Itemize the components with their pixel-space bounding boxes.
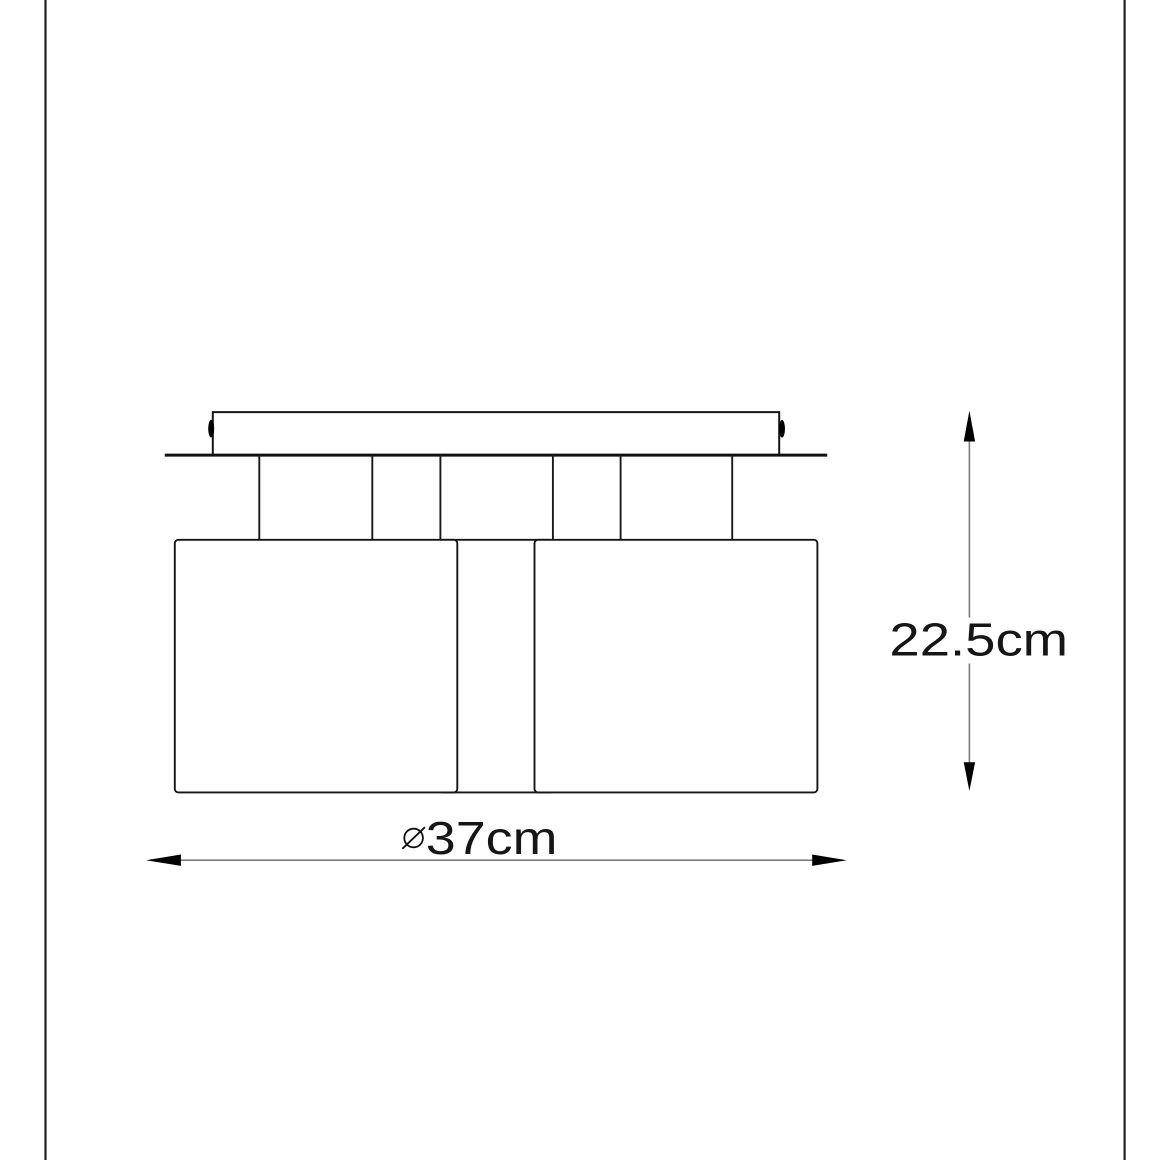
svg-text:37cm: 37cm [426,812,558,864]
svg-text:22.5cm: 22.5cm [889,613,1068,665]
